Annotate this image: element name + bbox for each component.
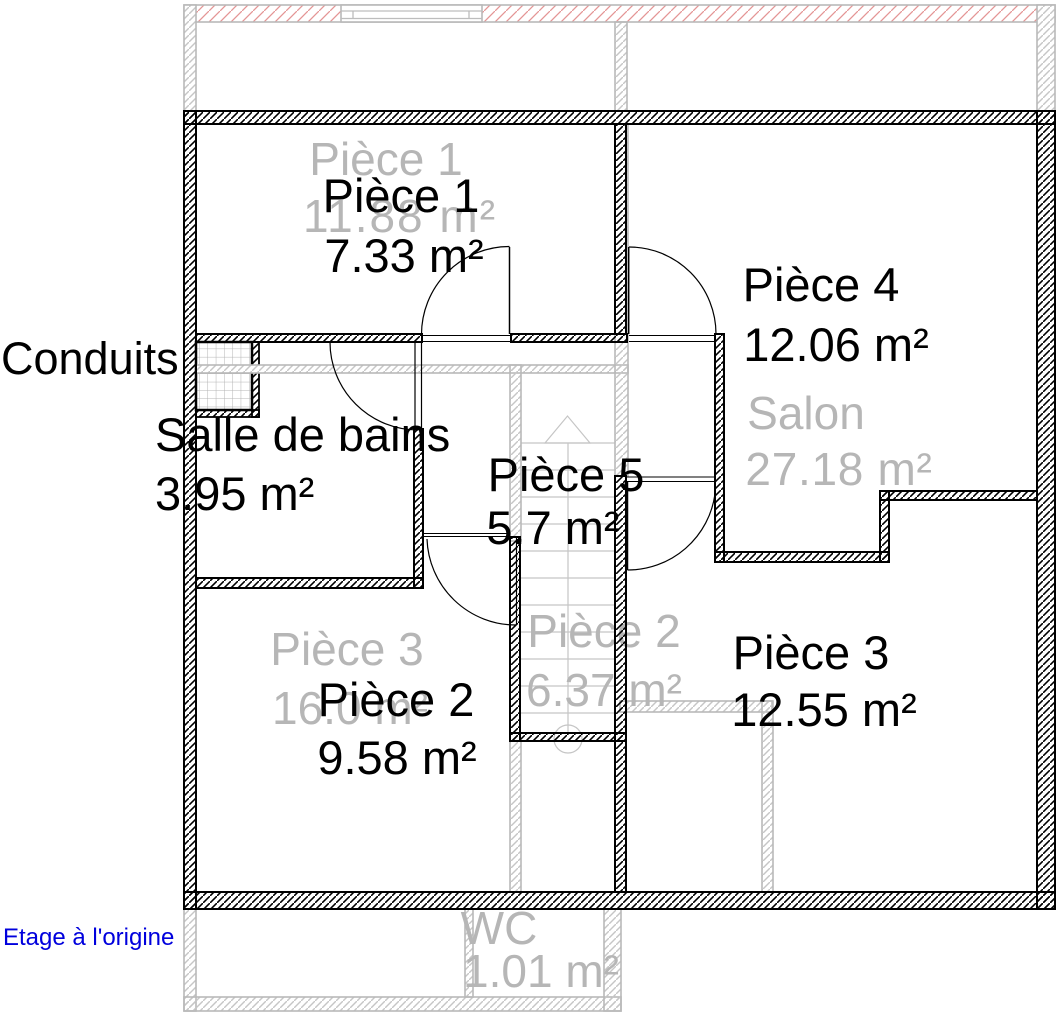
- svg-text:Pièce 5: Pièce 5: [488, 448, 645, 501]
- svg-text:27.18 m²: 27.18 m²: [745, 443, 932, 495]
- svg-text:Pièce 2: Pièce 2: [527, 605, 680, 657]
- svg-text:Pièce 2: Pièce 2: [318, 673, 475, 726]
- svg-text:9.58 m²: 9.58 m²: [317, 731, 476, 784]
- svg-text:Pièce 3: Pièce 3: [733, 626, 890, 679]
- svg-text:6.37 m²: 6.37 m²: [526, 664, 682, 716]
- svg-text:Salle de bains: Salle de bains: [155, 408, 450, 461]
- svg-text:Salon: Salon: [747, 387, 865, 439]
- svg-text:5.7 m²: 5.7 m²: [486, 501, 619, 554]
- svg-text:Etage à l'origine: Etage à l'origine: [3, 924, 174, 951]
- svg-text:3.95 m²: 3.95 m²: [155, 467, 314, 520]
- svg-text:7.33 m²: 7.33 m²: [324, 229, 483, 282]
- svg-text:Pièce 1: Pièce 1: [323, 169, 480, 222]
- svg-text:12.55 m²: 12.55 m²: [731, 683, 916, 736]
- svg-text:1.01 m²: 1.01 m²: [463, 945, 619, 997]
- svg-text:Pièce 3: Pièce 3: [270, 623, 423, 675]
- svg-text:Pièce 4: Pièce 4: [743, 258, 900, 311]
- svg-text:Conduits: Conduits: [1, 333, 179, 384]
- svg-text:12.06 m²: 12.06 m²: [743, 318, 928, 371]
